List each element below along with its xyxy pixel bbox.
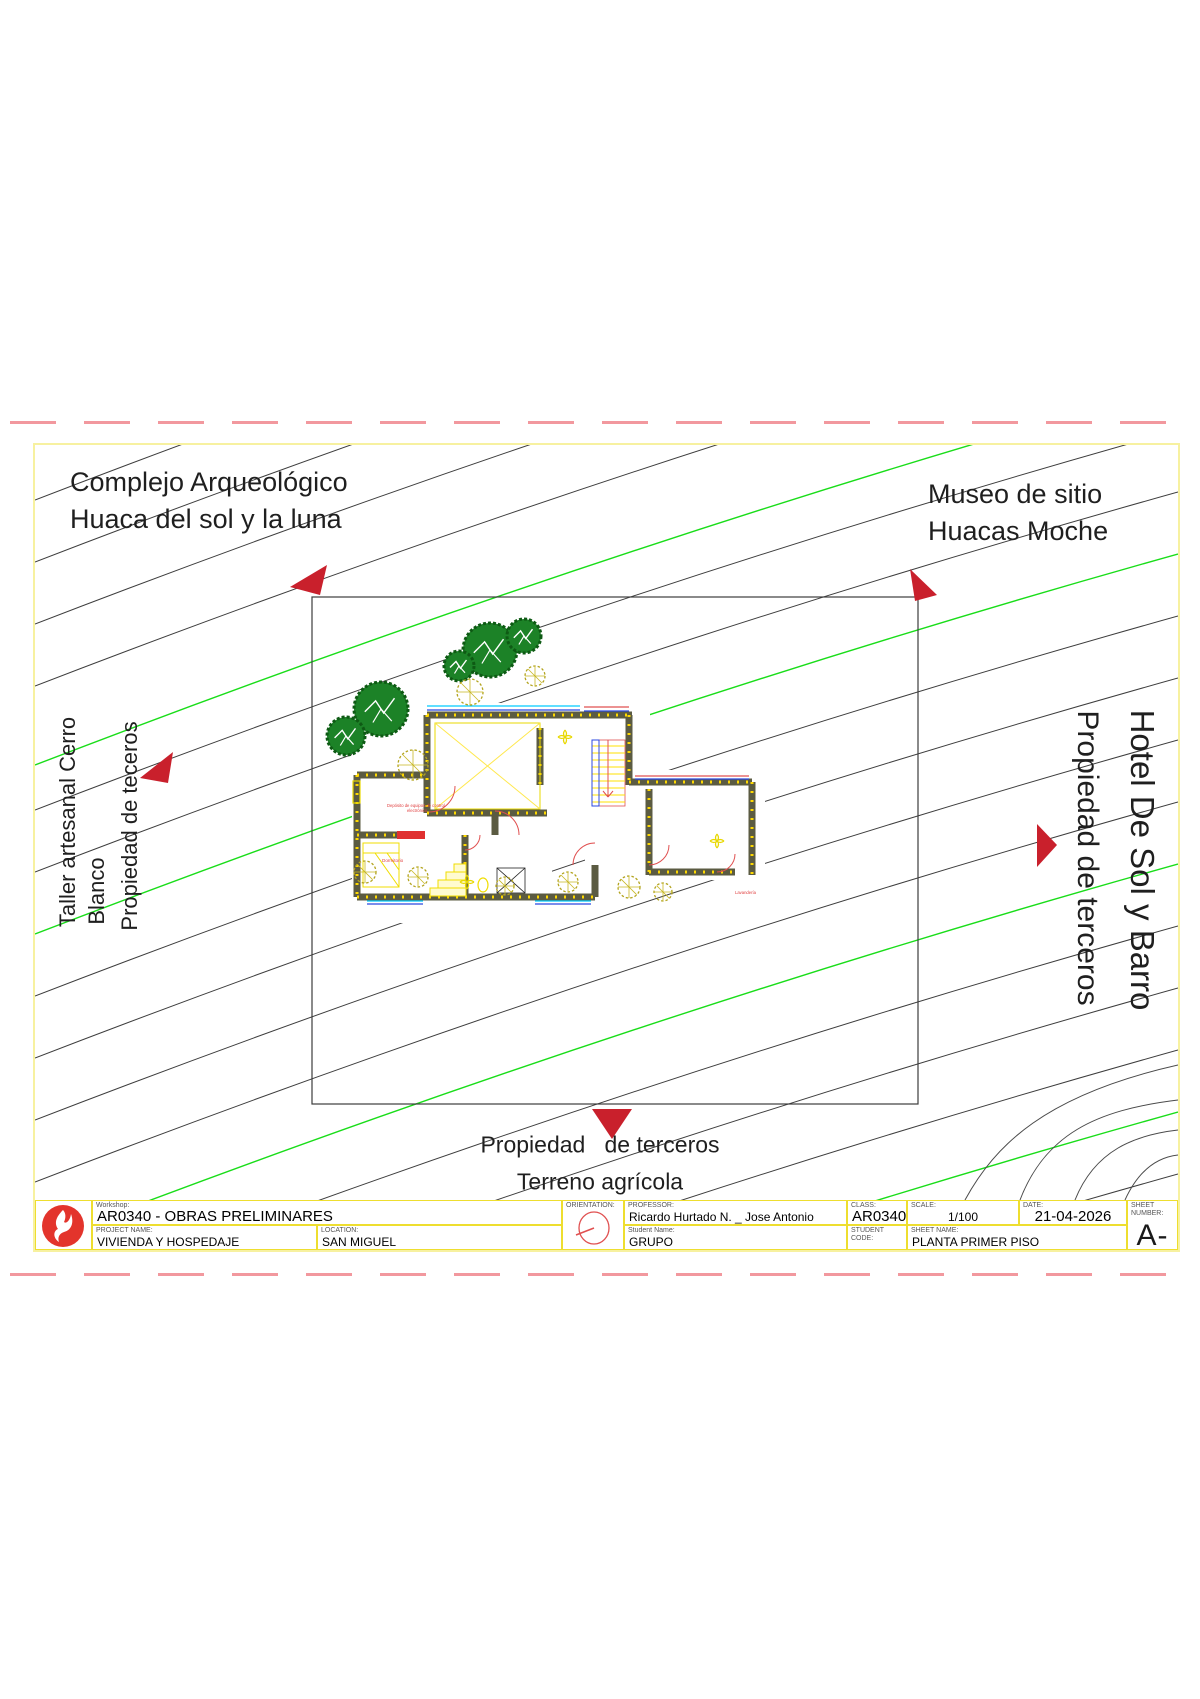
annotation-top-left-line2: Huaca del sol y la luna bbox=[70, 501, 348, 538]
professor-label: PROFESSOR: bbox=[625, 1201, 846, 1210]
label-storage-2: electrónico bbox=[407, 808, 428, 813]
student-code-cell: STUDENT CODE: bbox=[847, 1225, 907, 1250]
label-laundry: Lavandería bbox=[735, 890, 757, 895]
date-value: 21-04-2026 bbox=[1020, 1210, 1126, 1224]
class-value: AR0340 bbox=[848, 1210, 906, 1224]
sheet-number-label: SHEET NUMBER: bbox=[1128, 1201, 1177, 1218]
sheet-number-value: A-00 bbox=[1128, 1218, 1177, 1252]
annotation-bottom-line1: Propiedad de terceros bbox=[480, 1132, 719, 1159]
workshop-value: AR0340 - OBRAS PRELIMINARES bbox=[93, 1210, 561, 1224]
orientation-compass-icon bbox=[563, 1210, 623, 1248]
scale-value: 1/100 bbox=[908, 1210, 1018, 1224]
student-value: GRUPO bbox=[625, 1235, 846, 1249]
project-value: VIVIENDA Y HOSPEDAJE ECOSOSTENIB. bbox=[93, 1235, 316, 1252]
sheet-name-cell: SHEET NAME: PLANTA PRIMER PISO bbox=[907, 1225, 1127, 1250]
annotation-right-inner: Propiedad de terceros bbox=[1070, 710, 1104, 1005]
date-cell: DATE: 21-04-2026 bbox=[1019, 1200, 1127, 1225]
title-block: Workshop: AR0340 - OBRAS PRELIMINARES PR… bbox=[35, 1200, 1178, 1250]
project-label: PROJECT NAME: bbox=[93, 1226, 316, 1235]
arrow-top-left bbox=[290, 565, 327, 595]
annotation-left-line3: Propiedad de teceros bbox=[117, 721, 143, 930]
annotation-bottom-line2: Terreno agrícola bbox=[517, 1169, 683, 1196]
logo-cell bbox=[35, 1200, 92, 1250]
red-wall-segment bbox=[397, 831, 425, 839]
sheet-name-value: PLANTA PRIMER PISO bbox=[908, 1235, 1126, 1249]
label-bedroom: Dormitorio bbox=[382, 858, 404, 863]
class-cell: CLASS: AR0340 bbox=[847, 1200, 907, 1225]
sheet-name-label: SHEET NAME: bbox=[908, 1226, 1126, 1235]
arrow-right bbox=[1037, 824, 1057, 867]
student-label: Student Name: bbox=[625, 1226, 846, 1235]
annotation-top-left-line1: Complejo Arqueológico bbox=[70, 464, 348, 501]
annotation-left-line1: Taller artesanal Cerro bbox=[55, 717, 81, 927]
site-plan-svg: Depósito de equipos de control electróni… bbox=[35, 445, 1178, 1200]
curved-contours bbox=[965, 1065, 1178, 1200]
location-value: SAN MIGUEL bbox=[318, 1235, 561, 1249]
orientation-label: ORIENTATION: bbox=[563, 1201, 623, 1210]
arrow-top-right bbox=[910, 569, 937, 601]
annotation-right-outer: Hotel De Sol y Barro bbox=[1123, 710, 1161, 1011]
sheet-canvas: Depósito de equipos de control electróni… bbox=[0, 0, 1200, 1699]
professor-cell: PROFESSOR: Ricardo Hurtado N. _ Jose Ant… bbox=[624, 1200, 847, 1225]
upc-logo bbox=[40, 1203, 86, 1249]
sheet-number-cell: SHEET NUMBER: A-00 bbox=[1127, 1200, 1178, 1250]
arrow-left bbox=[140, 752, 173, 783]
location-cell: LOCATION: SAN MIGUEL bbox=[317, 1225, 562, 1250]
annotation-top-right-line1: Museo de sitio bbox=[928, 476, 1108, 513]
annotation-top-right-line2: Huacas Moche bbox=[928, 513, 1108, 550]
bottom-dashed-trim-line bbox=[10, 1273, 1190, 1276]
annotation-left-line2: Blanco bbox=[84, 857, 110, 924]
annotation-top-left: Complejo Arqueológico Huaca del sol y la… bbox=[70, 464, 348, 538]
project-cell: PROJECT NAME: VIVIENDA Y HOSPEDAJE ECOSO… bbox=[92, 1225, 317, 1250]
location-label: LOCATION: bbox=[318, 1226, 561, 1235]
scale-label: SCALE: bbox=[908, 1201, 1018, 1210]
scale-cell: SCALE: 1/100 bbox=[907, 1200, 1019, 1225]
student-cell: Student Name: GRUPO bbox=[624, 1225, 847, 1250]
student-code-label: STUDENT CODE: bbox=[848, 1226, 906, 1243]
orientation-cell: ORIENTATION: bbox=[562, 1200, 624, 1250]
top-dashed-trim-line bbox=[10, 421, 1190, 424]
annotation-top-right: Museo de sitio Huacas Moche bbox=[928, 476, 1108, 550]
workshop-cell: Workshop: AR0340 - OBRAS PRELIMINARES bbox=[92, 1200, 562, 1225]
